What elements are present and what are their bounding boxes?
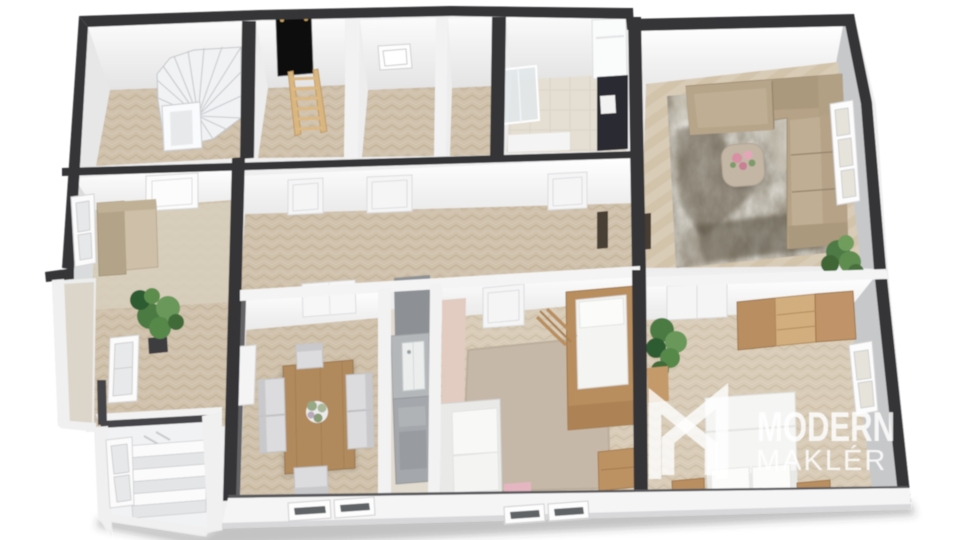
svg-text:MODERN: MODERN (757, 403, 895, 450)
svg-text:MAKLÉR: MAKLÉR (756, 444, 887, 477)
